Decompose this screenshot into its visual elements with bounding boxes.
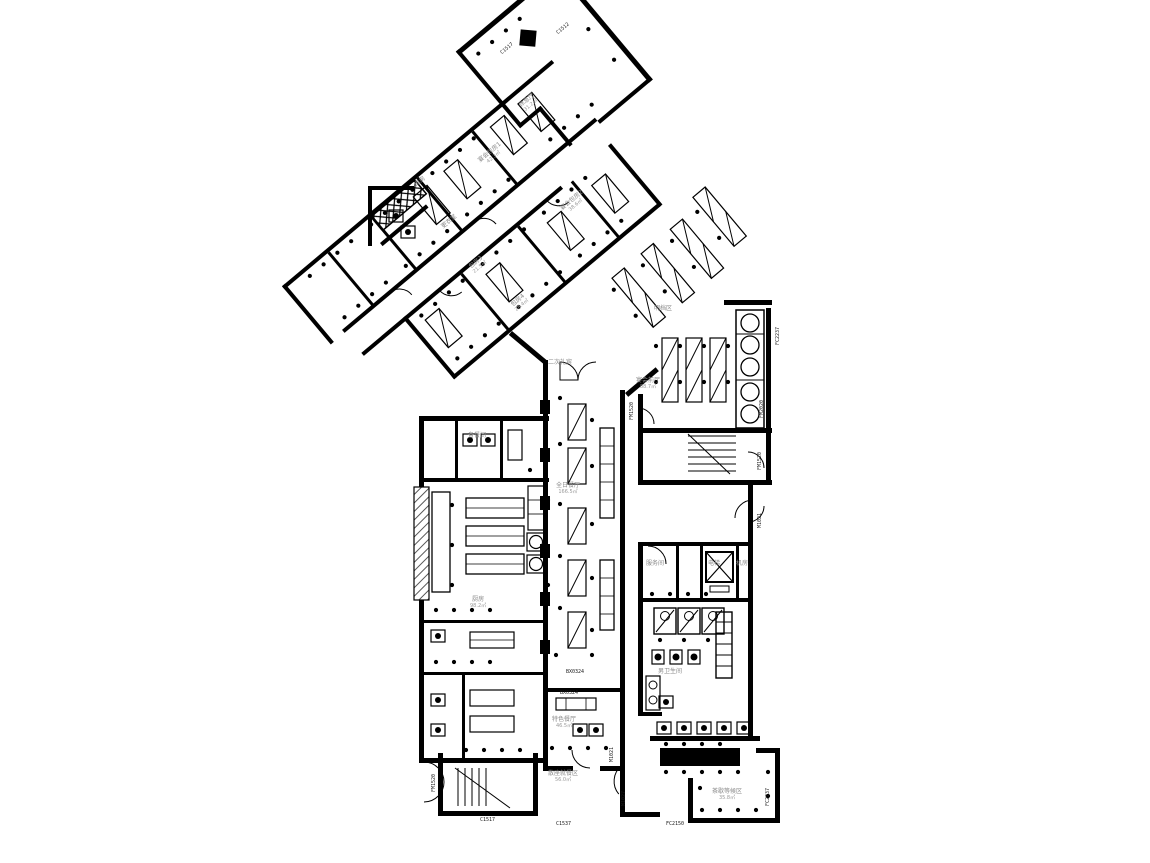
tag-c1517-a: C1517 bbox=[480, 818, 495, 823]
tag-fm1520-a: FM1520 bbox=[432, 774, 437, 792]
kitchen-equipment bbox=[431, 468, 550, 752]
hatched-wall bbox=[414, 487, 429, 600]
tag-bx0324-b: BX0324 bbox=[560, 691, 578, 696]
floor-plan-page: { "document": { "kind": "architectural-f… bbox=[0, 0, 1150, 863]
stairs-icon bbox=[455, 768, 510, 808]
tag-c1537: C1537 bbox=[556, 822, 571, 827]
service-shaft bbox=[716, 612, 732, 678]
room-label-mens-wc: 男卫生间 bbox=[658, 668, 682, 675]
tag-fc2150: FC2150 bbox=[666, 822, 684, 827]
stairs-icon bbox=[688, 434, 736, 474]
elevator-icon bbox=[706, 552, 733, 592]
tag-fm1520-b: FM1520 bbox=[758, 452, 763, 470]
room-label-elevator: 电梯 bbox=[708, 560, 720, 567]
column bbox=[519, 29, 536, 46]
tag-fm1520-c: FM1520 bbox=[630, 402, 635, 420]
room-label-machine: 机房 bbox=[736, 560, 748, 567]
room-label-specialty: 特色餐厅 46.5㎡ bbox=[552, 716, 576, 730]
room-label-pantry: 备餐间 bbox=[468, 432, 486, 439]
room-label-kitchen: 厨房 98.2㎡ bbox=[470, 596, 486, 610]
room-label-concierge: 二次礼宾 bbox=[548, 359, 572, 366]
tag-bx0324-a: BX0324 bbox=[566, 670, 584, 675]
serving-counter bbox=[650, 722, 760, 774]
floor-plan-drawing bbox=[0, 0, 1150, 863]
room-label-buffet: 明档区 bbox=[654, 305, 672, 312]
room-label-all-day-dining: 全日餐厅 166.5㎡ bbox=[556, 482, 580, 496]
stair-room-east bbox=[638, 430, 772, 485]
core-row bbox=[638, 542, 752, 602]
booth-bench bbox=[600, 428, 614, 630]
room-label-service: 服务间 bbox=[646, 560, 664, 567]
tag-m1021-a: M1021 bbox=[758, 513, 763, 528]
door-swing bbox=[572, 750, 590, 768]
room-label-banquet-foyer: 宴会前厅 88.7㎡ bbox=[636, 377, 660, 391]
tag-m1021-b: M1021 bbox=[610, 747, 615, 762]
banquet-foyer bbox=[638, 300, 772, 483]
room-label-seating-area: 散座就餐区 56.0㎡ bbox=[548, 770, 578, 784]
wing-dining-tables bbox=[599, 187, 752, 332]
main-body bbox=[414, 300, 780, 823]
tag-m1027: M1027 bbox=[622, 791, 627, 806]
room-label-tea-lounge: 茶歇等候区 35.8㎡ bbox=[712, 788, 742, 802]
restroom-block bbox=[638, 592, 724, 716]
tag-fm2020: FM2020 bbox=[760, 400, 765, 418]
tag-fc2237-b: FC2237 bbox=[776, 327, 781, 345]
wing-head-room bbox=[456, 0, 653, 165]
tag-fc2237-a: FC2237 bbox=[766, 788, 771, 806]
double-door bbox=[578, 362, 596, 380]
